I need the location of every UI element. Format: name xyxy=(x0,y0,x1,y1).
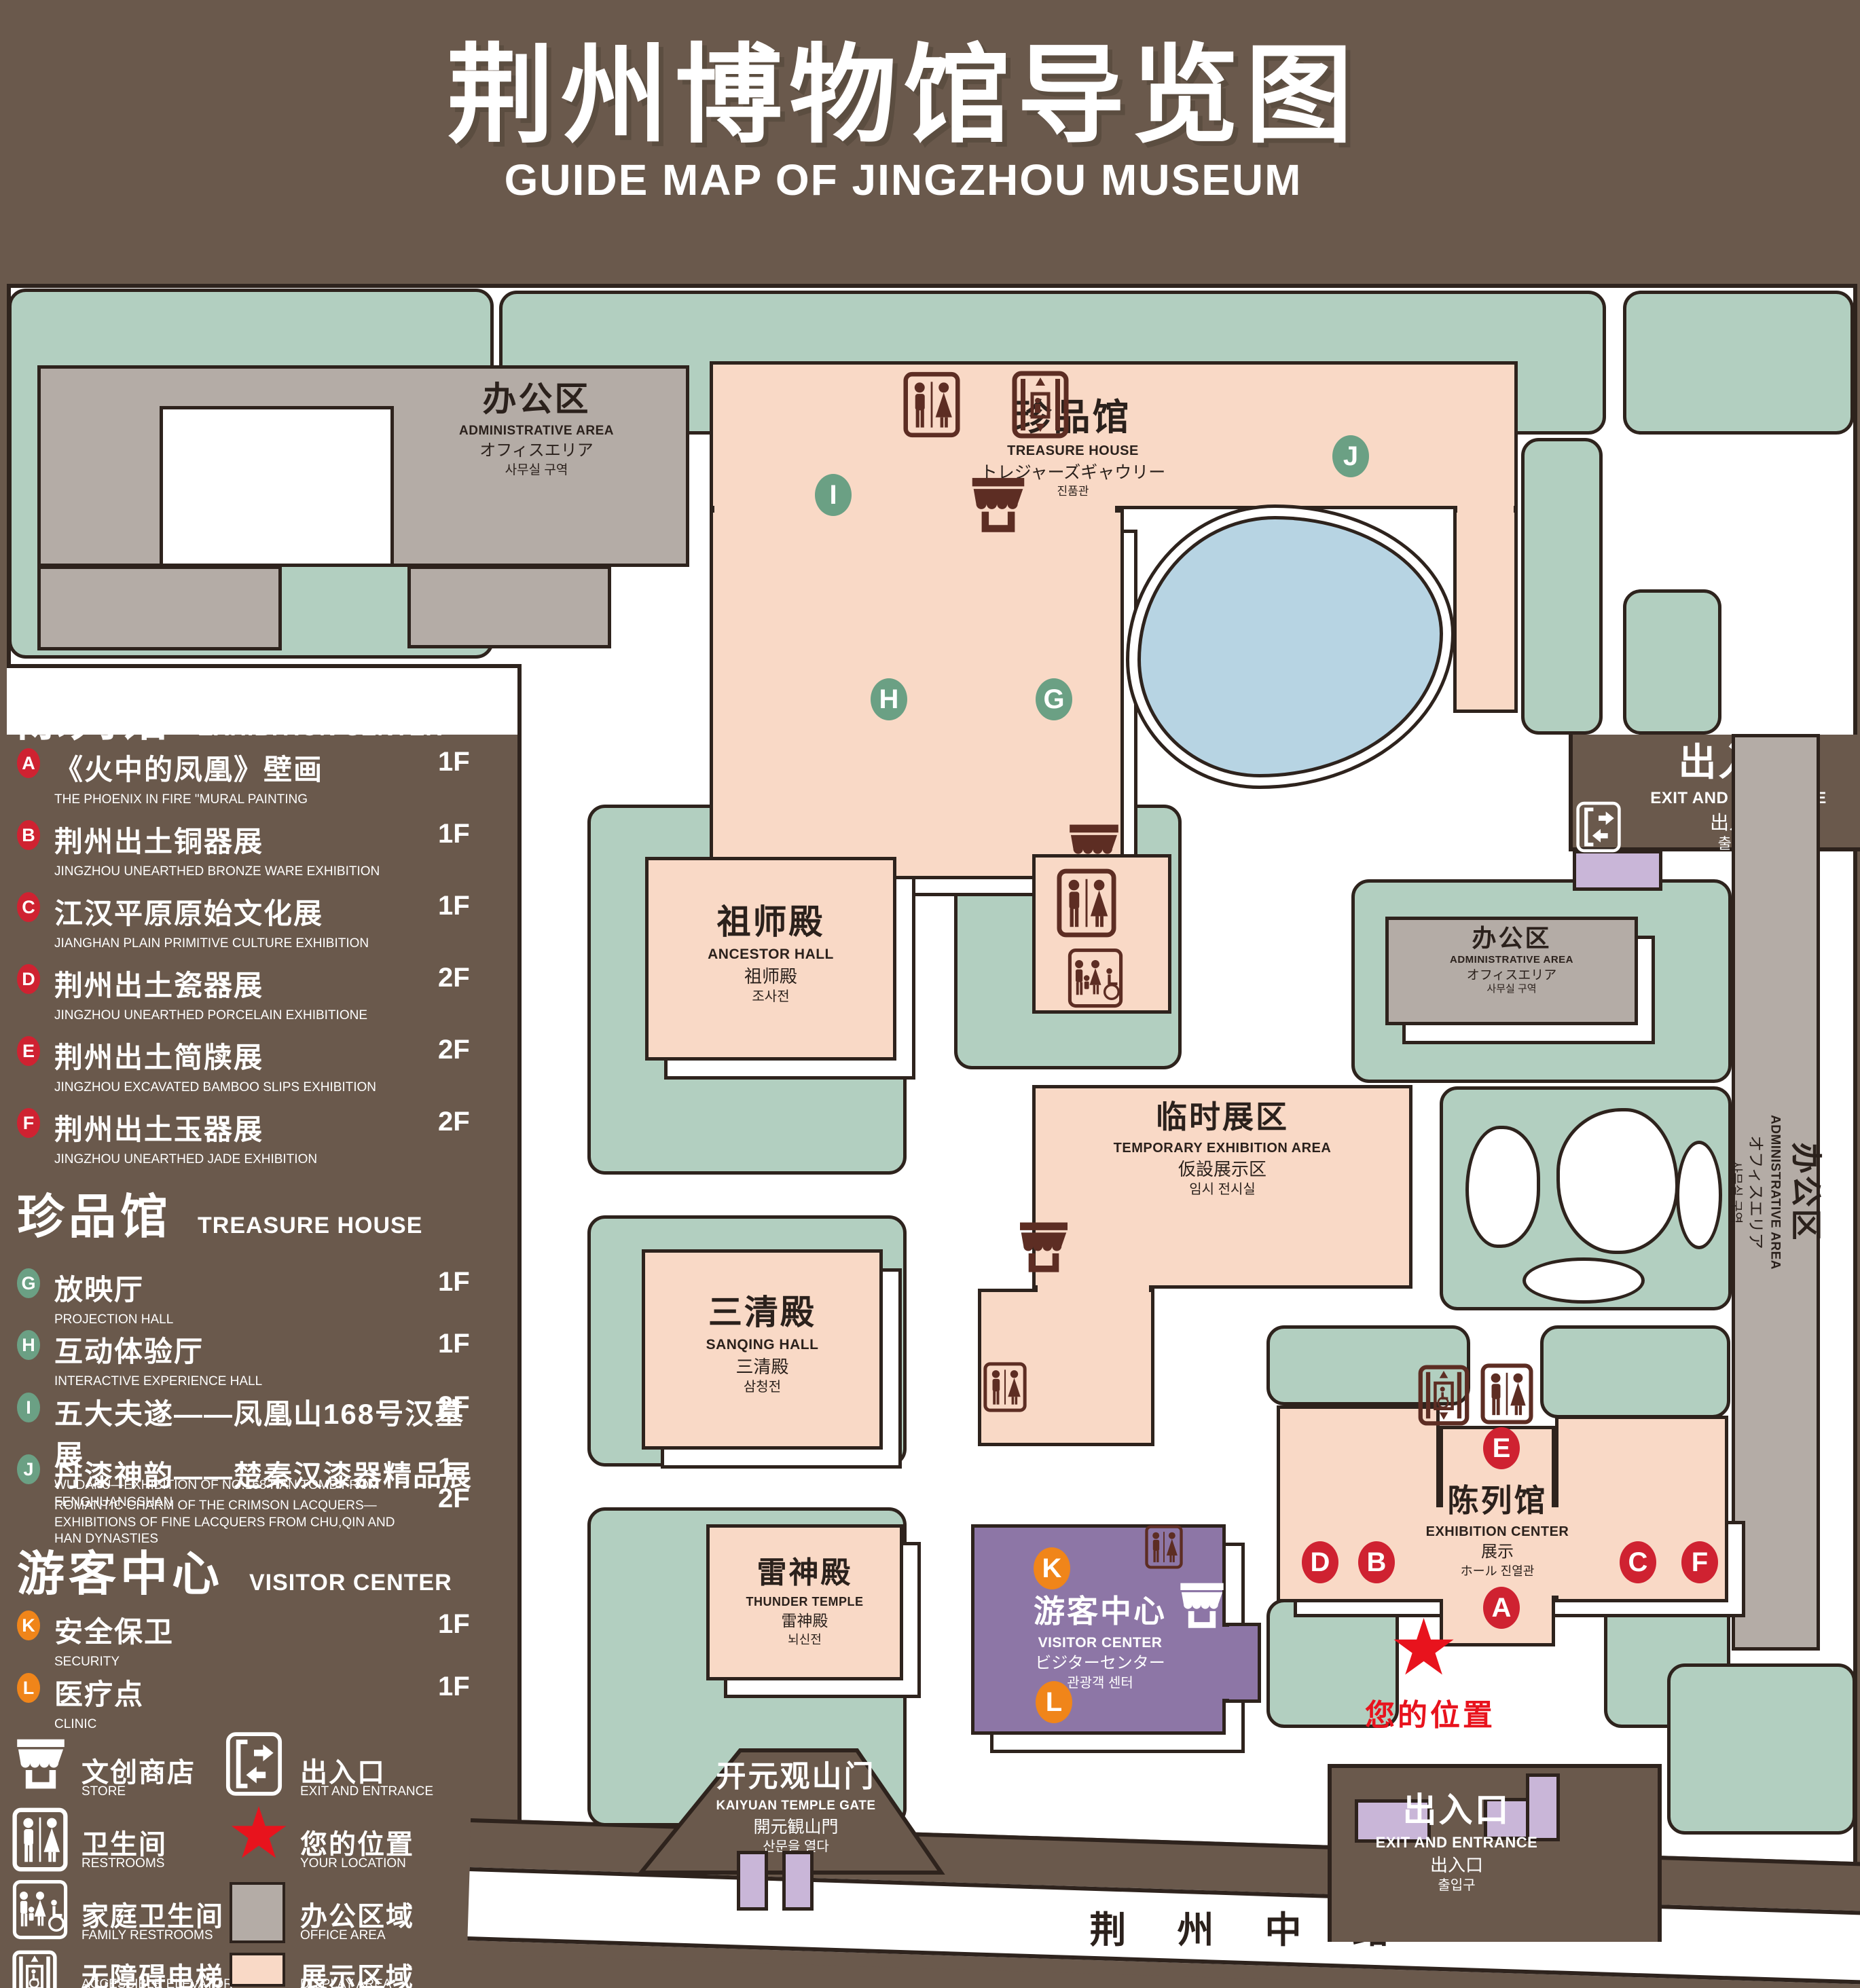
legend-item-A: A 《火中的凤凰》壁画 THE PHOENIX IN FIRE "MURAL P… xyxy=(17,747,492,809)
floor-badge: 1F xyxy=(438,819,470,849)
small-building xyxy=(1573,850,1662,891)
ancestor-label: 祖师殿 ANCESTOR HALL 祖师殿 조사전 xyxy=(652,903,890,1004)
your-location-star: ★ xyxy=(1389,1609,1459,1687)
map-marker-J: J xyxy=(1332,435,1369,477)
admin-label: 办公区 ADMINISTRATIVE AREA オフィスエリア 사무실 구역 xyxy=(407,380,665,477)
page-title: 荆州博物馆导览图 xyxy=(0,8,1806,164)
legend-item-L: L 医疗点 CLINIC 1F xyxy=(17,1672,492,1733)
floor-badge: 2F xyxy=(438,1391,470,1422)
section-title-zh: 珍品馆 xyxy=(17,1179,172,1247)
legend-marker-J: J xyxy=(17,1454,40,1484)
page-subtitle: GUIDE MAP OF JINGZHOU MUSEUM xyxy=(0,155,1806,205)
map-marker-L: L xyxy=(1036,1681,1072,1723)
legend-marker-I: I xyxy=(17,1393,40,1422)
store-icon xyxy=(1015,1221,1072,1276)
symbol-label-en: ACCESSIBLE ELEVATOR xyxy=(81,1977,233,1988)
garden-path-blob xyxy=(1465,1126,1540,1248)
symbol-label-en: OFFICE AREA xyxy=(300,1928,386,1943)
garden-path-blob xyxy=(1676,1141,1722,1249)
accessible-elevator-icon xyxy=(12,1950,57,1988)
admin-strip-label: 办公区 ADMINISTRATIVE AREA オフィスエリア 사무실 구역 xyxy=(1732,734,1820,1651)
lawn-top-right xyxy=(1623,291,1854,435)
legend-item-J: J 丹漆神韵——楚秦汉漆器精品展 ROMANTIC CHARM OF THE C… xyxy=(17,1453,492,1548)
restroom-icon xyxy=(983,1362,1027,1422)
section-title-zh: 陈列馆 xyxy=(17,681,172,750)
building-seam xyxy=(714,504,1115,515)
exit-label-bottom: 出入口 EXIT AND ENTRANCE 出入口 출입구 xyxy=(1328,1791,1586,1893)
symbol-label-en: YOUR LOCATION xyxy=(300,1856,406,1871)
map-marker-K: K xyxy=(1034,1547,1070,1589)
legend-marker-E: E xyxy=(17,1036,40,1066)
legend-item-E: E 荆州出土简牍展 JINGZHOU EXCAVATED BAMBOO SLIP… xyxy=(17,1035,492,1097)
guide-map-poster: 荆州博物馆导览图 GUIDE MAP OF JINGZHOU MUSEUM 荆 … xyxy=(0,0,1860,1988)
legend-section-exhibition-center: 陈列馆 EXHIBITION CENTER xyxy=(17,681,443,750)
floor-badge: 1F xyxy=(438,1329,470,1359)
visitor-center-step xyxy=(1226,1623,1261,1703)
building-seam xyxy=(1038,1283,1149,1294)
legend-marker-B: B xyxy=(17,820,40,850)
admin-right-label: 办公区 ADMINISTRATIVE AREA オフィスエリア 사무실 구역 xyxy=(1395,925,1628,995)
legend-section-treasure-house: 珍品馆 TREASURE HOUSE xyxy=(17,1179,422,1247)
your-location-label: 您的位置 xyxy=(1365,1691,1495,1734)
store-icon xyxy=(967,477,1029,536)
legend-item-C: C 江汉平原原始文化展 JIANGHAN PLAIN PRIMITIVE CUL… xyxy=(17,891,492,953)
family-restroom-icon xyxy=(12,1879,68,1940)
restroom-icon xyxy=(1480,1363,1533,1424)
temporary-label: 临时展区 TEMPORARY EXHIBITION AREA 仮設展示区 임시 … xyxy=(1049,1100,1396,1197)
legend-item-K: K 安全保卫 SECURITY 1F xyxy=(17,1609,492,1671)
map-marker-F: F xyxy=(1681,1541,1718,1583)
floor-badge: 2F xyxy=(438,1107,470,1137)
floor-badge: 1F xyxy=(438,891,470,921)
building-seam xyxy=(1221,1627,1230,1699)
floor-badge: 1F xyxy=(438,1267,470,1297)
map-marker-I: I xyxy=(815,474,852,516)
lawn-right-blob xyxy=(1623,589,1721,735)
floor-badge: 2F xyxy=(438,963,470,993)
symbol-label-en: STORE xyxy=(81,1784,126,1799)
legend-item-F: F 荆州出土玉器展 JINGZHOU UNEARTHED JADE EXHIBI… xyxy=(17,1107,492,1168)
legend-marker-H: H xyxy=(17,1330,40,1360)
sanqing-label: 三清殿 SANQING HALL 三清殿 삼청전 xyxy=(649,1293,876,1395)
store-icon xyxy=(1176,1582,1228,1634)
legend-marker-K: K xyxy=(17,1610,40,1640)
your-location-star: ★ xyxy=(227,1798,291,1869)
symbol-label-en: DISPLAY AREA xyxy=(300,1977,391,1988)
legend-marker-C: C xyxy=(17,892,40,922)
legend-item-G: G 放映厅 PROJECTION HALL 1F xyxy=(17,1267,492,1329)
section-title-zh: 游客中心 xyxy=(17,1536,223,1604)
map-marker-D: D xyxy=(1302,1541,1338,1583)
restroom-icon xyxy=(1057,868,1116,938)
floor-badge: 1-2F xyxy=(438,1453,492,1514)
elevator-icon xyxy=(1012,371,1069,439)
building-seam xyxy=(1457,504,1514,515)
map-marker-G: G xyxy=(1036,678,1072,720)
map-border-left-bottom xyxy=(7,664,522,668)
section-title-en: VISITOR CENTER xyxy=(249,1570,452,1596)
garden-path-blob xyxy=(1522,1257,1645,1304)
admin-building-mid-leg xyxy=(407,566,611,648)
legend-item-B: B 荆州出土铜器展 JINGZHOU UNEARTHED BRONZE WARE… xyxy=(17,819,492,881)
gate-pillar xyxy=(737,1851,768,1911)
floor-badge: 1F xyxy=(438,1672,470,1702)
symbol-label-en: EXIT AND ENTRANCE xyxy=(300,1784,433,1799)
gate-pillar xyxy=(782,1851,814,1911)
accessible-elevator-icon xyxy=(1418,1365,1470,1426)
legend-item-D: D 荆州出土瓷器展 JINGZHOU UNEARTHED PORCELAIN E… xyxy=(17,963,492,1025)
treasure-house-right xyxy=(1453,509,1518,713)
display-area-swatch xyxy=(230,1953,285,1987)
store-icon xyxy=(12,1738,69,1792)
symbol-label-en: RESTROOMS xyxy=(81,1856,164,1871)
section-title-en: EXHIBITION CENTER xyxy=(198,715,443,741)
legend-section-visitor-center: 游客中心 VISITOR CENTER xyxy=(17,1536,452,1604)
admin-courtyard xyxy=(160,406,394,567)
map-border-top xyxy=(7,284,1857,288)
thunder-label: 雷神殿 THUNDER TEMPLE 雷神殿 뇌신전 xyxy=(713,1556,896,1646)
legend-marker-A: A xyxy=(17,748,40,778)
exhibition-label: 陈列馆 EXHIBITION CENTER 展示 ホール 진열관 xyxy=(1399,1484,1596,1578)
admin-building-left-leg xyxy=(37,566,282,650)
office-area-swatch xyxy=(230,1882,285,1943)
symbol-label-en: FAMILY RESTROOMS xyxy=(81,1928,213,1943)
map-marker-E: E xyxy=(1483,1427,1520,1469)
lawn-right-column xyxy=(1521,438,1603,735)
visitor-label: 游客中心 VISITOR CENTER ビジターセンター 관광객 센터 xyxy=(998,1594,1202,1691)
floor-badge: 1F xyxy=(438,747,470,777)
floor-badge: 2F xyxy=(438,1035,470,1065)
restroom-icon xyxy=(1145,1525,1183,1577)
gate-label: 开元观山门 KAIYUAN TEMPLE GATE 開元観山門 산문을 열다 xyxy=(646,1760,945,1854)
lawn-exhibition-ne xyxy=(1540,1325,1730,1418)
floor-badge: 1F xyxy=(438,1609,470,1640)
exit-icon xyxy=(225,1731,282,1797)
map-marker-B: B xyxy=(1358,1541,1395,1583)
restroom-icon xyxy=(12,1807,68,1872)
garden-path-blob xyxy=(1556,1108,1679,1254)
legend-marker-L: L xyxy=(17,1673,40,1703)
legend-marker-D: D xyxy=(17,964,40,994)
restroom-icon xyxy=(903,371,960,439)
exit-icon xyxy=(1575,801,1627,853)
legend-item-H: H 互动体验厅 INTERACTIVE EXPERIENCE HALL 1F xyxy=(17,1329,492,1391)
lawn-bottom-right xyxy=(1667,1663,1856,1835)
legend-marker-G: G xyxy=(17,1268,40,1298)
section-title-en: TREASURE HOUSE xyxy=(198,1213,422,1239)
map-marker-C: C xyxy=(1620,1541,1656,1583)
map-border-legend-divider xyxy=(517,664,522,1825)
legend-marker-F: F xyxy=(17,1108,40,1138)
map-marker-A: A xyxy=(1483,1587,1520,1629)
family-restroom-icon xyxy=(1068,948,1123,1005)
map-marker-H: H xyxy=(871,678,907,720)
